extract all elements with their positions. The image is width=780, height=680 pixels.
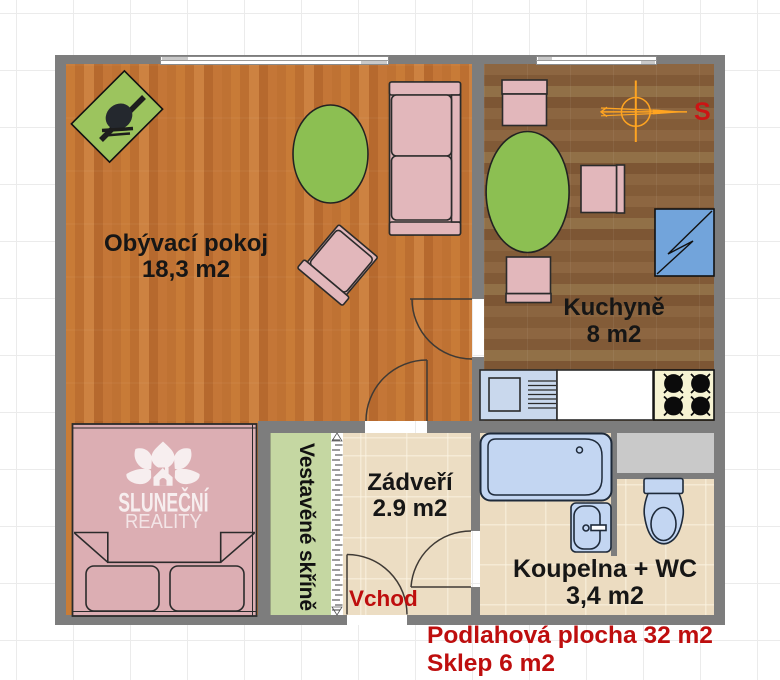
- svg-text:Vestavěné skříně: Vestavěné skříně: [295, 443, 318, 611]
- svg-text:REALITY: REALITY: [125, 510, 202, 533]
